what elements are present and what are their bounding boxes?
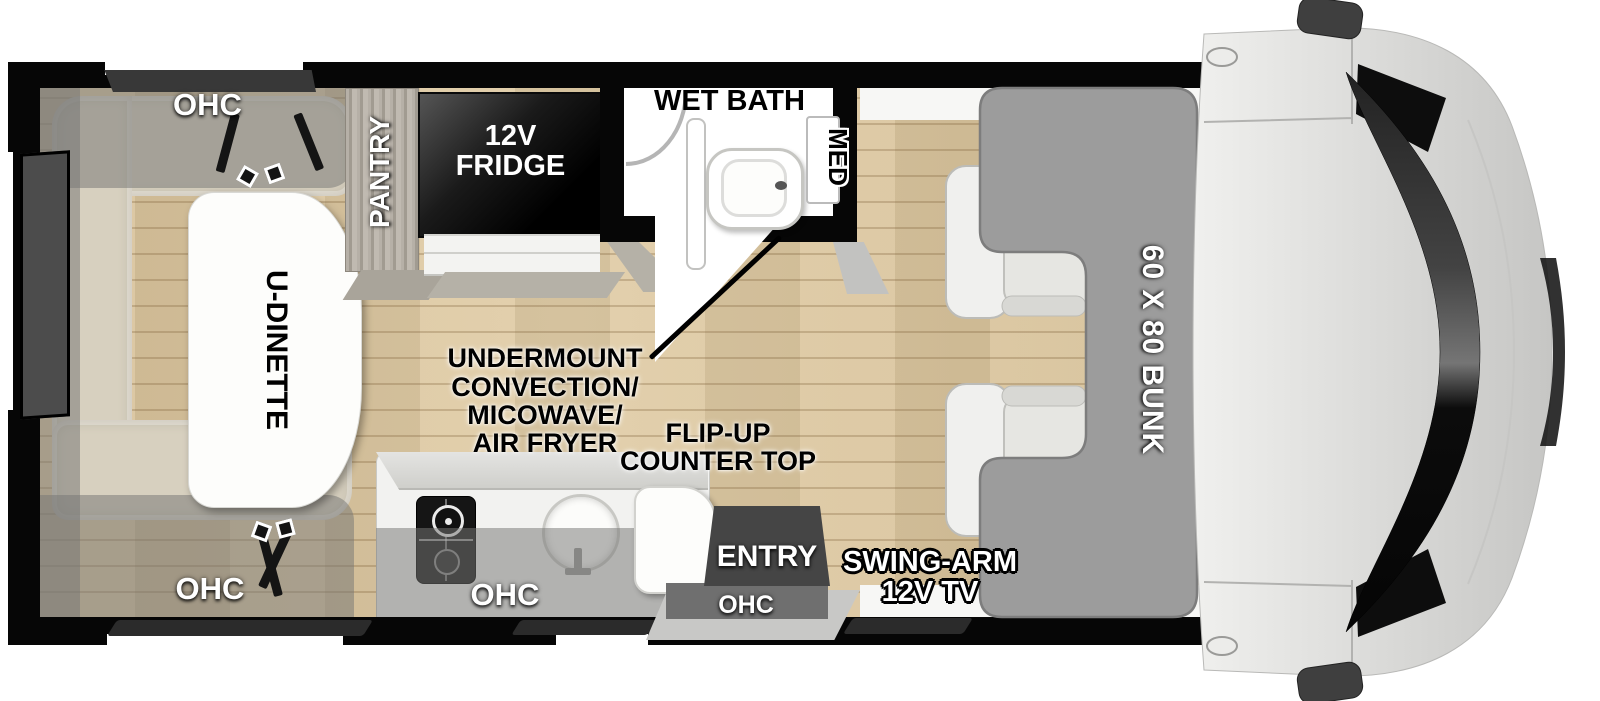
fridge-base-seam [424,252,600,254]
door-window-top [1356,64,1446,152]
window-bottom-kitchen [556,634,648,647]
front-grille-band [1540,258,1565,446]
label-pantry: PANTRY [365,82,395,262]
rv-floorplan-canvas: OHC OHC OHC OHC PANTRY 12V FRIDGE WET BA… [0,0,1600,701]
label-flip-up: FLIP-UP COUNTER TOP [606,416,830,478]
label-bunk: 60 X 80 BUNK [1135,230,1169,470]
label-ohc-dinette-top: OHC [155,88,260,122]
window-rear [2,152,13,410]
label-swing-arm-tv: SWING-ARM 12V TV [818,544,1042,610]
fridge-floor-shadow [427,272,625,298]
label-flip-up-line2: COUNTER TOP [620,447,816,475]
shower-divider [686,118,706,270]
label-flip-up-line1: FLIP-UP [666,419,771,447]
label-undermount-line3: MICOWAVE/ [467,401,623,429]
label-tv-line2: 12V TV [882,577,979,607]
floor-mat-kitchen [511,620,656,635]
door-window-bottom [1356,549,1446,637]
label-ohc-dinette-bottom: OHC [155,572,265,606]
side-mirror-bottom-icon [1296,661,1364,701]
cab-body [1193,28,1552,676]
toilet [706,148,804,230]
cab-wall-strip-top [860,88,1216,120]
burner-center-dot [445,518,452,525]
side-mirror-top-icon [1296,0,1364,40]
label-entry: ENTRY [704,540,830,574]
label-ohc-entry: OHC [690,590,802,620]
fridge-base [424,234,600,276]
label-wet-bath: WET BATH [624,86,835,116]
label-med: MED [823,97,851,217]
label-undermount-line1: UNDERMOUNT [448,344,643,372]
hood-seam [1468,120,1514,584]
rear-wall-tv-panel [20,150,70,419]
toilet-flush-icon [775,181,787,190]
floor-mat-dinette [107,620,373,636]
label-fridge: 12V FRIDGE [418,116,603,186]
label-fridge-line1: 12V [485,121,537,151]
label-tv-line1: SWING-ARM [843,547,1017,577]
floor-mat-cab [843,618,973,634]
door-seams [1204,30,1352,674]
label-ohc-kitchen: OHC [450,578,560,612]
label-undermount-line2: CONVECTION/ [451,373,639,401]
label-u-dinette: U-DINETTE [260,230,292,470]
windshield [1346,72,1480,632]
label-fridge-line2: FRIDGE [456,151,566,181]
label-undermount-line4: AIR FRYER [473,429,618,457]
